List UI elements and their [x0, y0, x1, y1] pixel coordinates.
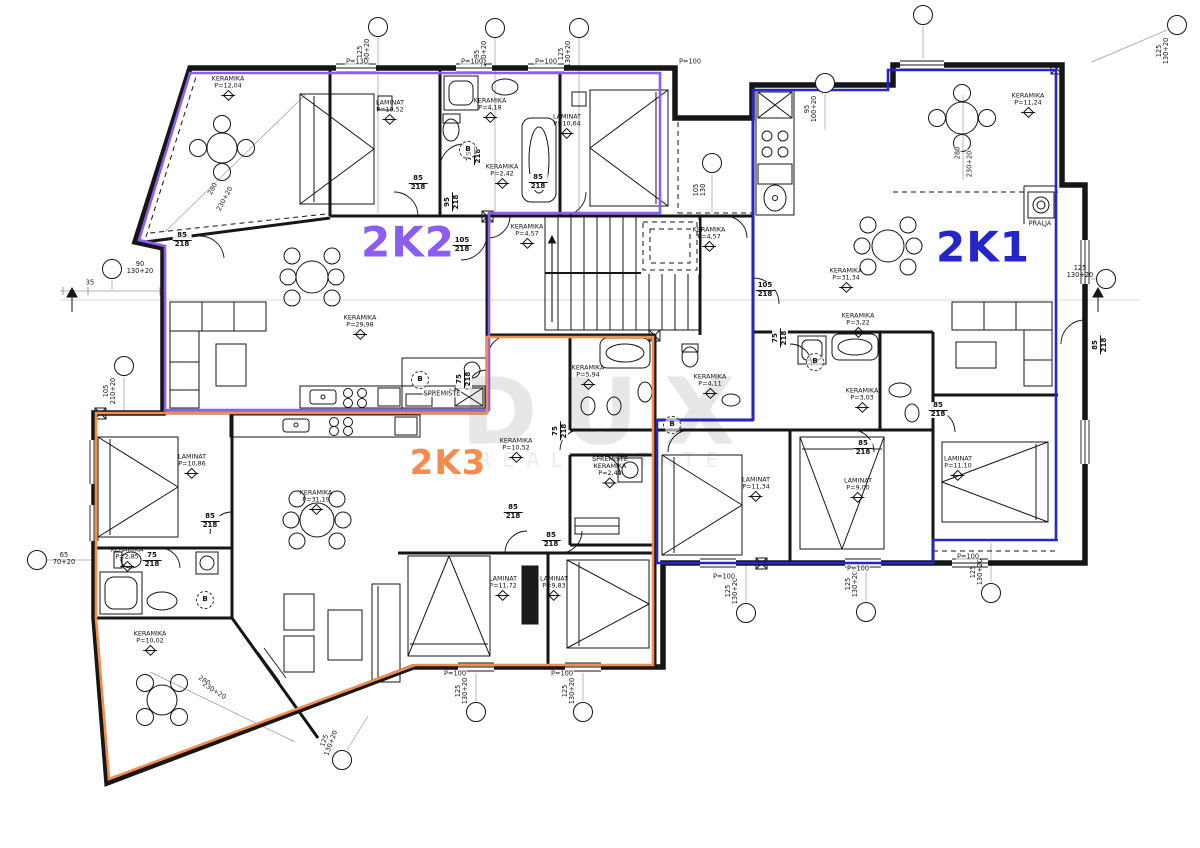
floor-plan-page: DUX REAL ESTATE [0, 0, 1200, 848]
floor-plan-drawing [0, 0, 1200, 848]
door-arcs [160, 144, 1085, 568]
furniture [95, 63, 1062, 726]
unit-outline-2K2 [139, 73, 660, 410]
stairs [545, 216, 700, 330]
terrace-dashed-edges [146, 77, 1058, 551]
